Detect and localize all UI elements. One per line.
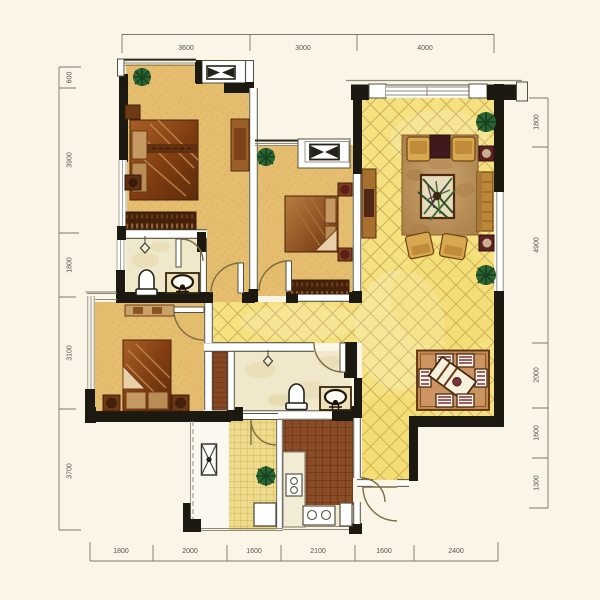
svg-text:1800: 1800 — [534, 114, 541, 130]
svg-text:1800: 1800 — [67, 257, 74, 273]
svg-text:3000: 3000 — [295, 45, 311, 52]
svg-text:1600: 1600 — [534, 425, 541, 441]
svg-text:1600: 1600 — [376, 548, 392, 555]
svg-text:1800: 1800 — [113, 548, 129, 555]
svg-text:1600: 1600 — [246, 548, 262, 555]
svg-text:600: 600 — [67, 72, 74, 84]
svg-text:3700: 3700 — [67, 463, 74, 479]
svg-text:2000: 2000 — [182, 548, 198, 555]
svg-text:2100: 2100 — [310, 548, 326, 555]
svg-text:4900: 4900 — [534, 237, 541, 253]
svg-text:3100: 3100 — [67, 345, 74, 361]
svg-text:2400: 2400 — [448, 548, 464, 555]
svg-text:1300: 1300 — [534, 475, 541, 491]
svg-text:3900: 3900 — [67, 152, 74, 168]
svg-text:3600: 3600 — [178, 45, 194, 52]
svg-text:2000: 2000 — [534, 367, 541, 383]
svg-text:4000: 4000 — [417, 45, 433, 52]
